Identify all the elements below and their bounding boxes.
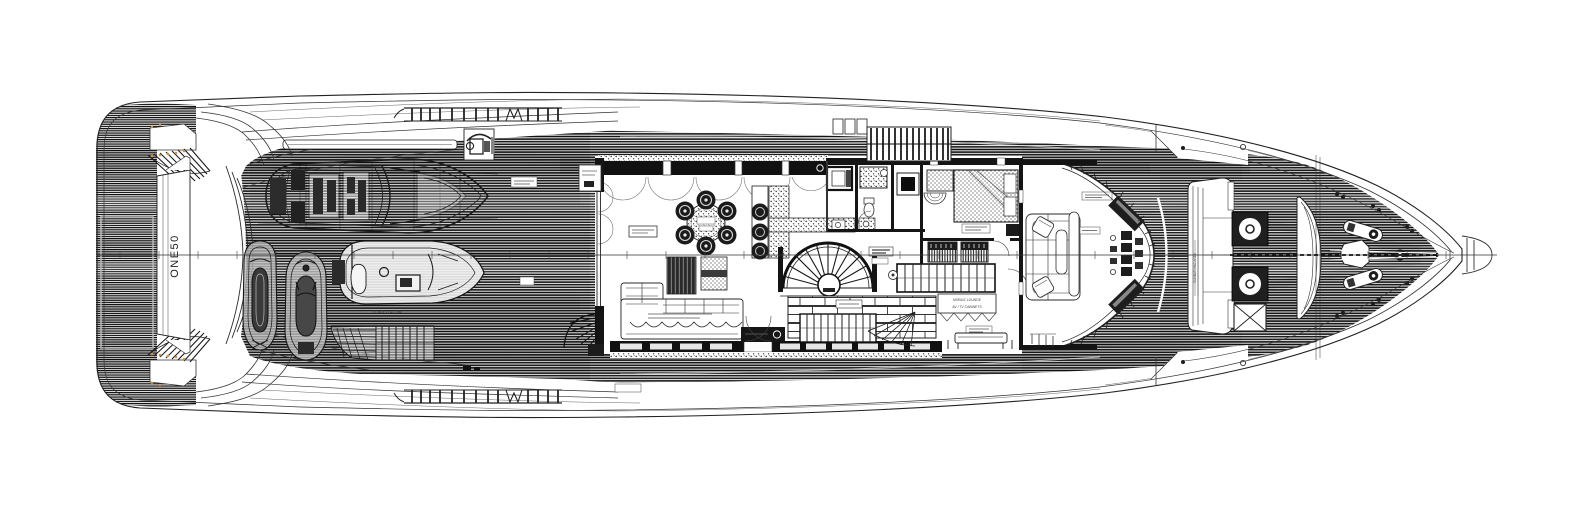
svg-text:AV / TV CABINETS: AV / TV CABINETS — [952, 305, 982, 309]
svg-text:SUNBATHING AREA: SUNBATHING AREA — [1193, 252, 1197, 283]
svg-text:ONE50: ONE50 — [169, 234, 181, 278]
svg-text:TENDER 4.75M: TENDER 4.75M — [372, 309, 403, 314]
svg-text:MOBILE LOUNGE: MOBILE LOUNGE — [953, 298, 982, 302]
